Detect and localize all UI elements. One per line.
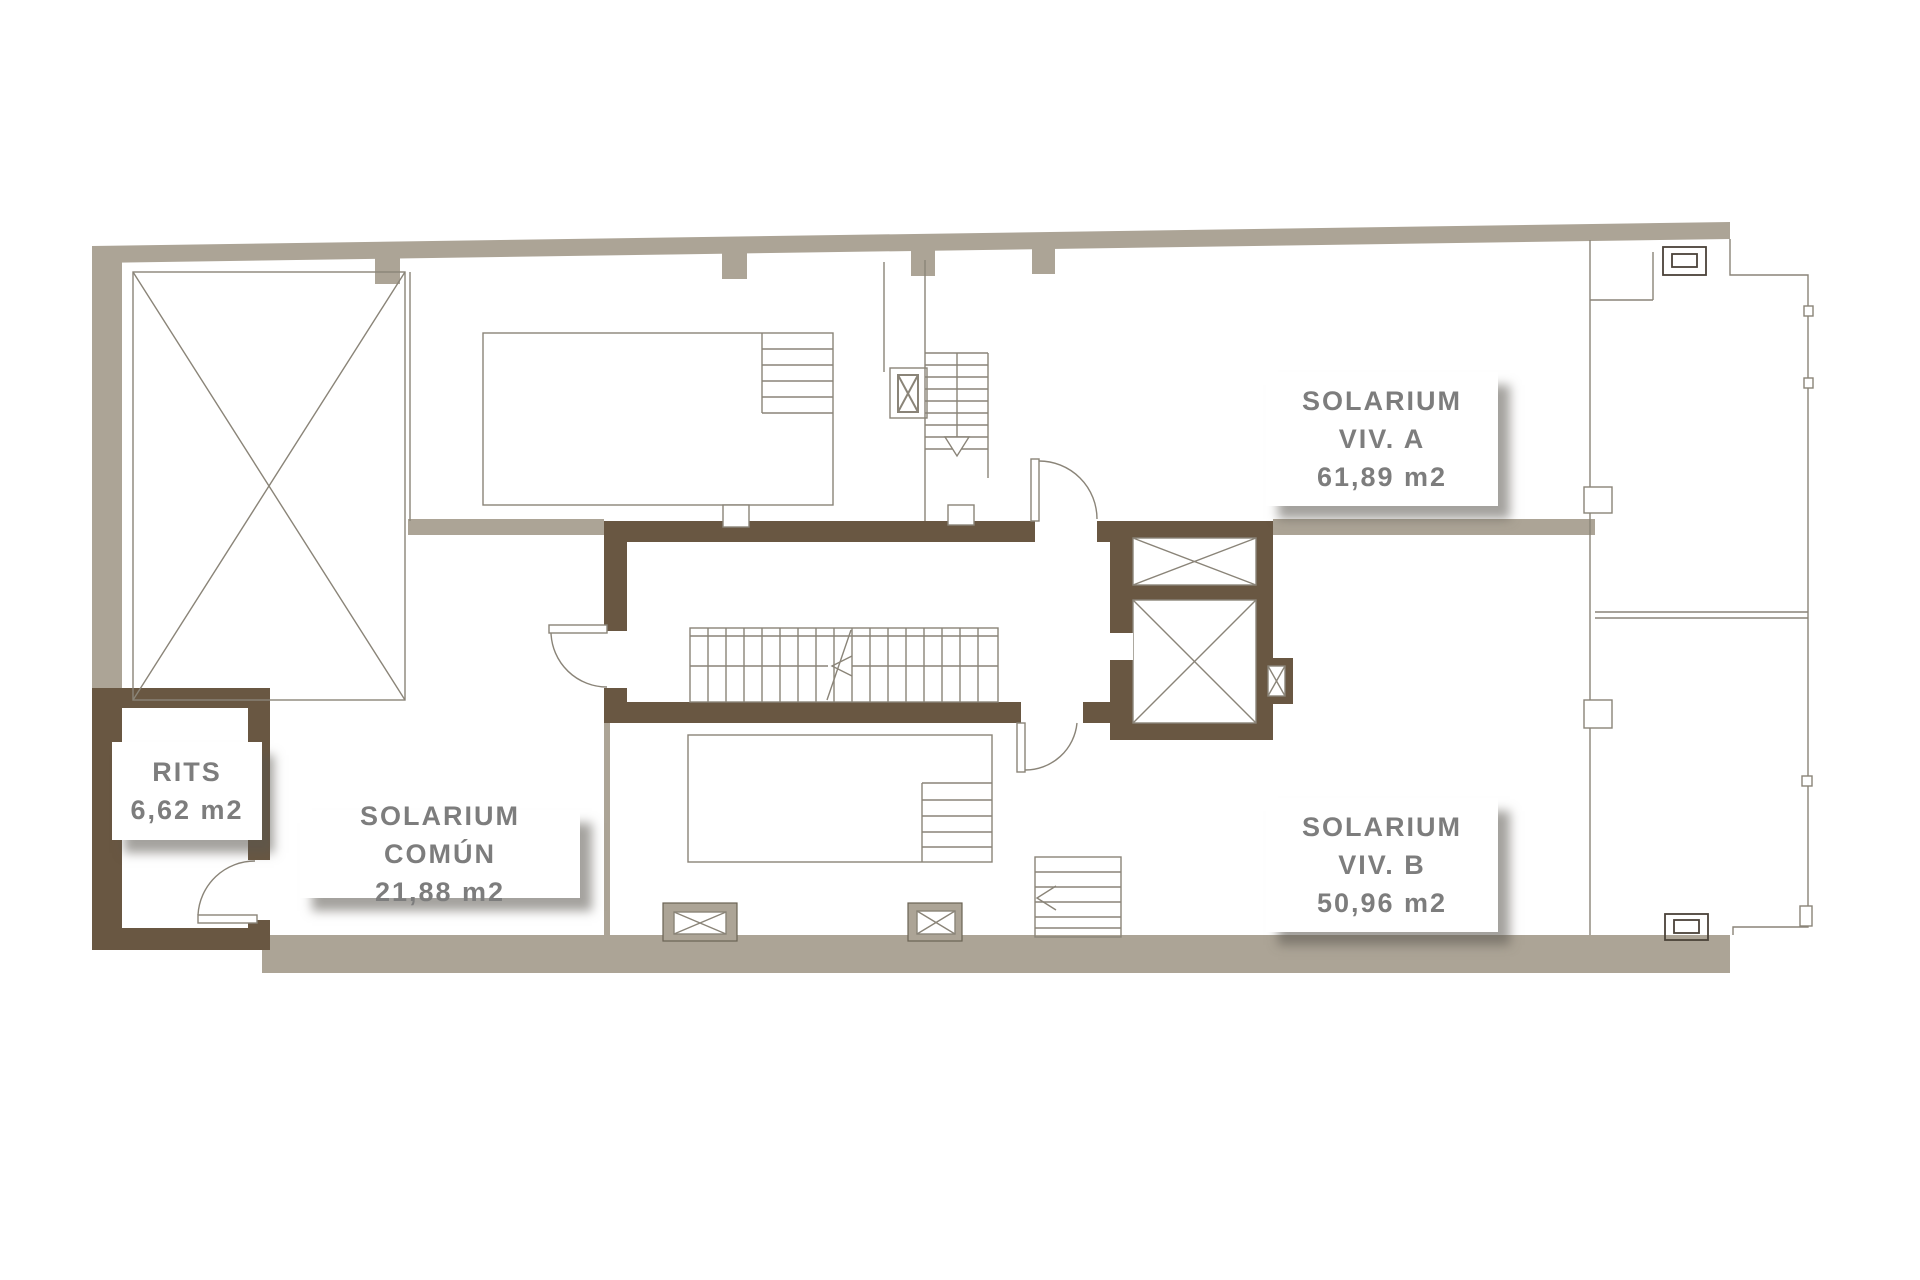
terrace-outline	[1584, 239, 1813, 935]
top-wall-pier	[722, 252, 747, 279]
rits-bottom-wall	[92, 928, 270, 950]
stair-break-line	[827, 630, 851, 700]
label-solarium-viv-b: SOLARIUM VIV. B 50,96 m2	[1266, 798, 1498, 932]
core-left-wall	[604, 521, 627, 631]
divider-wall-right-of-elevator	[1273, 519, 1595, 535]
stair-small-vivb	[1035, 857, 1121, 937]
elevator-duct-inner	[1268, 666, 1285, 696]
terrace-notch	[1804, 306, 1813, 316]
stair-main	[690, 628, 998, 702]
door-core-bottom	[1017, 723, 1077, 772]
core-bottom-wall	[604, 702, 1021, 723]
column-marker	[1584, 700, 1612, 728]
elevator-divider-wall	[1133, 585, 1256, 600]
duct-box-top	[890, 368, 927, 418]
elevator-right-wall	[1256, 521, 1273, 740]
vent-box-inner	[917, 911, 955, 934]
label-solarium-viv-a: SOLARIUM VIV. A 61,89 m2	[1266, 372, 1498, 506]
stair-arrow-down	[945, 437, 969, 456]
stair-arrow-left	[832, 656, 852, 676]
terrace-notch	[1800, 906, 1812, 926]
door-arc	[1025, 723, 1077, 770]
top-wall-pier	[375, 257, 400, 284]
column-marker	[723, 505, 749, 527]
room-name: SOLARIUM COMÚN	[300, 797, 580, 874]
door-arc	[1039, 461, 1097, 519]
vent-box-inner	[674, 912, 726, 934]
column-marker	[1584, 487, 1612, 513]
pool-top	[483, 333, 833, 505]
bottom-wall	[262, 935, 1730, 973]
floor-plan-page: SOLARIUM VIV. A 61,89 m2 SOLARIUM VIV. B…	[0, 0, 1920, 1280]
room-area: 50,96 m2	[1317, 884, 1447, 922]
core-elevator-shared-wall	[1110, 521, 1133, 633]
column-marker	[948, 505, 974, 525]
elevator-shaft-lower	[1133, 600, 1256, 723]
door-leaf	[549, 625, 607, 633]
door-arc	[551, 633, 607, 687]
top-wall-pier	[1032, 247, 1055, 274]
top-wall-pier	[911, 249, 935, 276]
room-name: SOLARIUM	[1302, 808, 1462, 846]
door-leaf	[1017, 723, 1025, 772]
left-wall	[92, 252, 122, 695]
chimney-top	[1663, 247, 1706, 275]
label-rits: RITS 6,62 m2	[112, 742, 262, 840]
divider-wall-comun-vivb	[604, 723, 610, 935]
rits-top-wall	[92, 688, 270, 708]
skylight-x-area	[133, 272, 405, 700]
elevator-bottom-wall	[1110, 723, 1273, 740]
stair-top-center	[925, 353, 988, 478]
divider-wall-left-of-core	[408, 519, 604, 535]
pool-bottom	[688, 735, 992, 862]
door-core-top	[1031, 459, 1097, 521]
room-name: VIV. B	[1338, 846, 1426, 884]
door-leaf	[198, 915, 257, 923]
room-name: RITS	[152, 753, 222, 791]
room-name: SOLARIUM	[1302, 382, 1462, 420]
room-area: 61,89 m2	[1317, 458, 1447, 496]
terrace-notch	[1804, 378, 1813, 388]
door-leaf	[1031, 459, 1039, 521]
door-rits	[198, 861, 257, 923]
door-arc	[198, 861, 255, 915]
room-name: VIV. A	[1339, 420, 1426, 458]
terrace-notch	[1802, 776, 1812, 786]
core-elevator-shared-wall	[1110, 660, 1133, 723]
floor-plan-drawing	[0, 0, 1920, 1280]
elevator-top-wall	[1133, 521, 1273, 538]
room-area: 6,62 m2	[130, 791, 243, 829]
elevator-shaft-upper	[1133, 538, 1256, 585]
elevator-door-opening	[1110, 633, 1133, 660]
room-area: 21,88 m2	[375, 873, 505, 911]
label-solarium-comun: SOLARIUM COMÚN 21,88 m2	[300, 810, 580, 898]
stair-arrow-left	[1037, 886, 1056, 910]
door-core-left	[549, 625, 607, 687]
